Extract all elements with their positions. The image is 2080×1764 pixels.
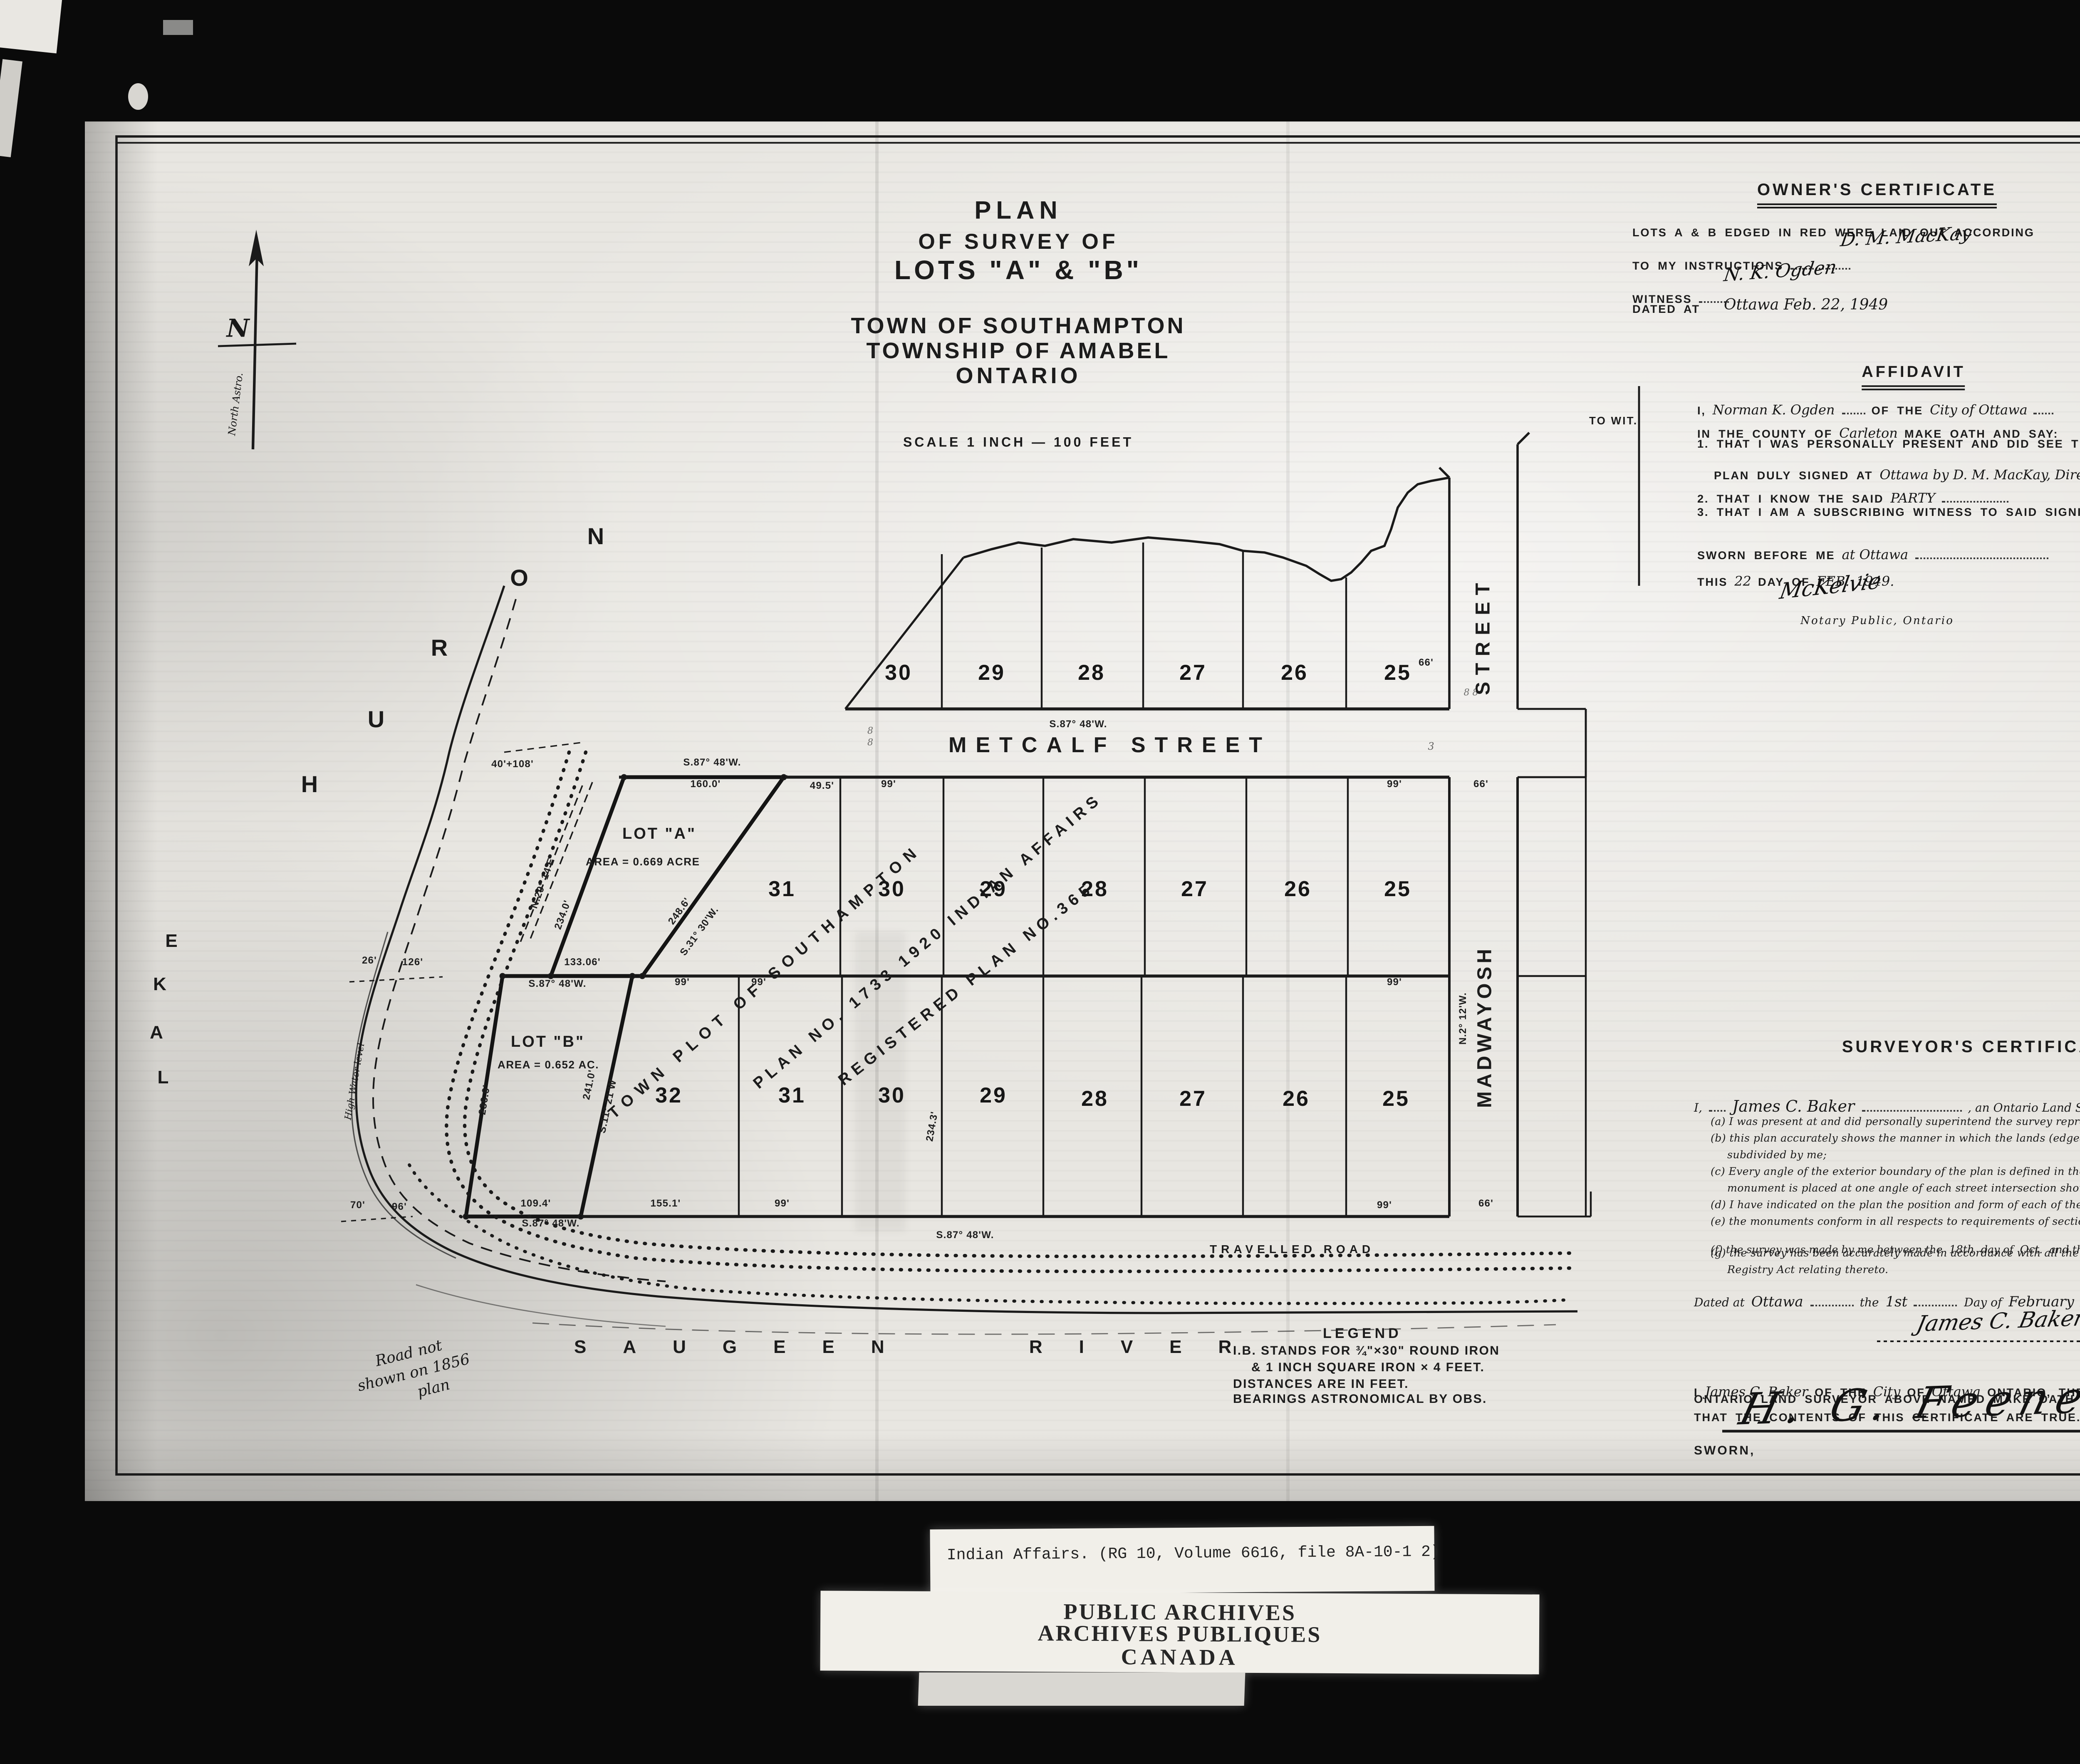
distance-label: 70'	[350, 1202, 365, 1212]
hw-mark: 8	[867, 727, 873, 737]
lot-number: 28	[1081, 1086, 1109, 1111]
deponent-name: Norman K. Ogden	[1713, 403, 1835, 418]
north-symbol: N	[227, 315, 250, 344]
lake-letter: L	[158, 1068, 169, 1088]
clause-e: (e) the monuments conform in all respect…	[1711, 1215, 2080, 1231]
legend-heading: LEGEND	[1323, 1326, 1402, 1343]
lot-b-label: LOT "B"	[511, 1035, 585, 1053]
lot-number: 28	[1078, 660, 1105, 685]
printed-text: the	[1860, 1296, 1879, 1310]
printed-text: THIS	[1697, 577, 1728, 589]
sworn-label: SWORN,	[1694, 1444, 1755, 1459]
printed-text: , an Ontario Land Surveyor, certify that…	[1968, 1102, 2080, 1115]
lot-number: 25	[1384, 876, 1411, 901]
lot-number: 32	[655, 1083, 683, 1107]
dotted-rule	[1861, 1100, 1961, 1112]
file-reference-text: Indian Affairs. (RG 10, Volume 6616, fil…	[947, 1544, 1440, 1566]
lot-number: 31	[768, 876, 796, 901]
lot-number: 27	[1181, 876, 1208, 901]
affidavit-item2: 2. THAT I KNOW THE SAID PARTY	[1697, 481, 2008, 512]
distance-label: 66'	[1473, 780, 1488, 790]
distance-label: 160.0'	[691, 780, 721, 790]
lot-number: 31	[778, 1083, 806, 1107]
deponent-city: City of Ottawa	[1930, 403, 2028, 418]
hw-mark: 3	[1428, 743, 1434, 755]
archives-line3: CANADA	[1121, 1644, 1238, 1671]
distance-label: 99'	[881, 780, 896, 790]
lot-number: 30	[878, 1083, 906, 1107]
lot-b-area: AREA = 0.652 AC.	[498, 1060, 599, 1073]
printed-text: 2. THAT I KNOW THE SAID	[1697, 494, 1884, 506]
lot-number: 29	[978, 660, 1005, 685]
day-hw: 22	[1734, 574, 1751, 589]
surveyor-name-hw: James C. Baker	[1732, 1098, 1855, 1117]
plan-title-line6: ONTARIO	[956, 363, 1081, 389]
plan-title-line2: OF SURVEY OF	[918, 230, 1118, 255]
dotted-rule	[1915, 548, 2048, 559]
lot-number: 28	[1081, 876, 1109, 901]
dotted-rule	[1942, 491, 2008, 503]
plan-title-line3: LOTS "A" & "B"	[894, 258, 1142, 288]
madwayosh-bearing: N.2° 12'W.	[1459, 992, 1469, 1045]
sworn-place-hw: at Ottawa	[1842, 548, 1908, 562]
printed-text: Day of	[1964, 1296, 2002, 1310]
lot-number: 25	[1384, 660, 1411, 685]
street-word-vertical: STREET	[1473, 576, 1496, 695]
huron-letter: U	[368, 706, 385, 732]
dotted-rule	[2034, 403, 2054, 414]
distance-label: 99'	[751, 979, 766, 989]
dotted-rule	[1842, 403, 1865, 414]
legend-line1: I.B. STANDS FOR ¾"×30" ROUND IRON	[1233, 1345, 1500, 1359]
printed-text: SWORN BEFORE ME	[1697, 551, 1835, 562]
lot-number: 30	[878, 876, 906, 901]
lake-letter: E	[165, 932, 177, 952]
huron-letter: O	[510, 564, 528, 591]
surveyors-certificate-heading: SURVEYOR'S CERTIFICATE	[1842, 1039, 2080, 1058]
legend-line3: DISTANCES ARE IN FEET.	[1233, 1378, 1409, 1392]
lot-number: 29	[980, 1083, 1007, 1107]
distance-label: 96'	[392, 1203, 407, 1213]
bearing-label: S.87° 48'W.	[522, 1220, 579, 1230]
paper-sliver	[918, 1672, 1246, 1706]
distance-label: 99'	[1387, 780, 1402, 790]
hw-mark: 8 8	[1464, 689, 1478, 699]
lot-a-label: LOT "A"	[622, 827, 696, 845]
dated-at-value: Ottawa Feb. 22, 1949	[1724, 298, 1888, 315]
clause-g: (g) the survey has been accurately made …	[1711, 1246, 2080, 1278]
owners-certificate-heading: OWNER'S CERTIFICATE	[1757, 182, 1997, 208]
distance-label: 126'	[402, 959, 423, 969]
file-reference-slip: Indian Affairs. (RG 10, Volume 6616, fil…	[930, 1526, 1434, 1594]
distance-label: 99'	[1377, 1202, 1392, 1212]
travelled-road-label: TRAVELLED ROAD	[1210, 1245, 1374, 1258]
plan-title-line1: PLAN	[974, 197, 1062, 226]
distance-label: 40'+108'	[491, 761, 534, 771]
archives-line2: ARCHIVES PUBLIQUES	[1038, 1620, 1322, 1648]
bearing-label: S.87° 48'W.	[1049, 721, 1107, 731]
distance-label: 99'	[675, 979, 690, 989]
distance-label: 133.06'	[564, 959, 601, 969]
clause-a: (a) I was present at and did personally …	[1711, 1115, 2080, 1131]
bearing-label: S.87° 48'W.	[528, 980, 586, 990]
plan-title-line5: TOWNSHIP OF AMABEL	[866, 338, 1170, 364]
affidavit-heading: AFFIDAVIT	[1862, 365, 1966, 390]
to-wit-label: TO WIT.	[1589, 416, 1638, 429]
affidavit-item3: 3. THAT I AM A SUBSCRIBING WITNESS TO SA…	[1697, 508, 2080, 520]
bearing-label: S.87° 48'W.	[936, 1231, 994, 1241]
distance-label: 66'	[1478, 1200, 1493, 1210]
printed-text: I,	[1694, 1102, 1702, 1115]
dotted-rule	[1914, 1295, 1957, 1306]
owners-certificate-body1: LOTS A & B EDGED IN RED WERE LAID OUT AC…	[1632, 228, 2035, 241]
distance-label: 26'	[362, 957, 377, 967]
huron-letter: R	[431, 634, 448, 661]
film-blob	[128, 83, 148, 110]
scanned-survey-plan: PLAN OF SURVEY OF LOTS "A" & "B" TOWN OF…	[0, 0, 2080, 1764]
distance-label: 109.4'	[521, 1200, 551, 1210]
lot-a-area: AREA = 0.669 ACRE	[586, 857, 700, 870]
affidavit-sworn-line: SWORN BEFORE ME at Ottawa	[1697, 538, 2048, 568]
hw-mark: 8	[867, 738, 873, 749]
dotted-rule	[1709, 1100, 1726, 1112]
lake-letter: A	[150, 1023, 163, 1043]
madwayosh-street-label: MADWAYOSH	[1474, 946, 1497, 1108]
lot-number: 26	[1284, 876, 1312, 901]
bearing-label: S.87° 48'W.	[683, 759, 741, 769]
party-hw: PARTY	[1890, 491, 1935, 506]
plan-scale-note: SCALE 1 INCH — 100 FEET	[903, 435, 1134, 451]
film-mark	[163, 20, 193, 35]
clause-d: (d) I have indicated on the plan the pos…	[1711, 1198, 2080, 1214]
lot-number: 27	[1179, 660, 1207, 685]
distance-label: 155.1'	[651, 1200, 681, 1210]
printed-text: Dated at	[1694, 1296, 1745, 1310]
public-archives-stamp: PUBLIC ARCHIVES ARCHIVES PUBLIQUES CANAD…	[820, 1591, 1540, 1674]
clause-c: (c) Every angle of the exterior boundary…	[1711, 1165, 2080, 1197]
distance-label: 99'	[1387, 979, 1402, 989]
lot-number: 26	[1283, 1086, 1310, 1111]
lot-number: 25	[1382, 1086, 1410, 1111]
film-corner-patch	[0, 0, 63, 53]
huron-letter: H	[301, 771, 318, 797]
legend-line4: BEARINGS ASTRONOMICAL BY OBS.	[1233, 1393, 1487, 1407]
distance-label: 99'	[775, 1200, 790, 1210]
huron-letter: N	[587, 523, 604, 549]
film-edge-patch	[0, 59, 22, 157]
affidavit-item1a: 1. THAT I WAS PERSONALLY PRESENT AND DID…	[1697, 439, 2080, 452]
lake-letter: K	[153, 975, 166, 995]
lot-number: 26	[1281, 660, 1308, 685]
place-hw: Ottawa	[1751, 1295, 1803, 1311]
paper-fold-crease	[1286, 121, 1290, 1501]
day-hw: 1st	[1886, 1295, 1908, 1311]
metcalf-street-label: METCALF STREET	[948, 734, 1271, 759]
signing-place-hw: Ottawa by D. M. MacKay, Director	[1879, 468, 2080, 483]
legend-line2: & 1 INCH SQUARE IRON × 4 FEET.	[1251, 1361, 1485, 1376]
distance-label: 49.5'	[810, 782, 834, 792]
dotted-rule	[1810, 1295, 1853, 1306]
distance-label: 66'	[1419, 659, 1434, 669]
clause-b: (b) this plan accurately shows the manne…	[1711, 1132, 2080, 1164]
dated-at-label: DATED AT	[1632, 305, 1700, 317]
plan-title-line4: TOWN OF SOUTHAMPTON	[851, 313, 1186, 339]
lot-number: 29	[980, 876, 1007, 901]
lot-number: 30	[885, 660, 912, 685]
county-name: Carleton	[1839, 426, 1898, 441]
lot-number: 27	[1179, 1086, 1207, 1111]
notary-title: Notary Public, Ontario	[1800, 616, 1954, 628]
saugeen-river-label: SAUGEEN RIVER	[574, 1338, 1268, 1359]
